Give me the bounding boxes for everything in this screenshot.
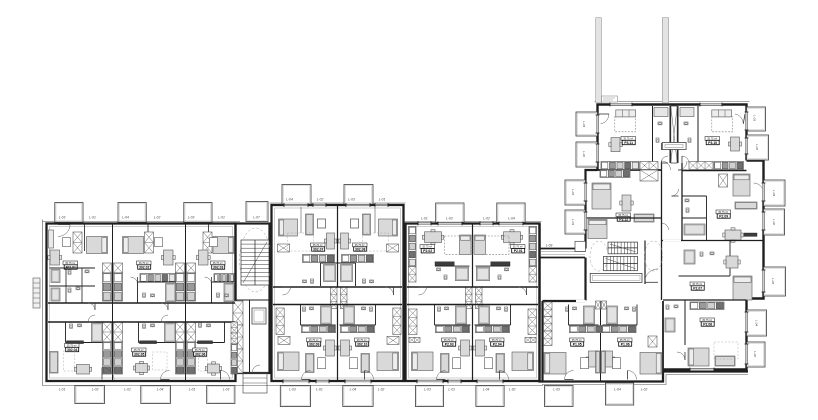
svg-text:L-03: L-03 <box>424 388 431 392</box>
svg-text:P3.11: P3.11 <box>624 141 633 145</box>
svg-text:L-03: L-03 <box>348 198 355 202</box>
svg-text:P1.05: P1.05 <box>573 342 582 346</box>
svg-text:L-01: L-01 <box>753 115 757 121</box>
svg-text:P2.06: P2.06 <box>703 322 712 326</box>
svg-text:L-01: L-01 <box>189 388 196 392</box>
svg-text:L-02: L-02 <box>753 351 757 357</box>
svg-text:L-02: L-02 <box>317 198 324 202</box>
svg-text:L-01: L-01 <box>316 388 323 392</box>
svg-text:L-03: L-03 <box>59 216 66 220</box>
svg-text:L-07: L-07 <box>253 216 260 220</box>
svg-text:L-01: L-01 <box>421 217 428 221</box>
svg-text:P3.10: P3.10 <box>708 141 717 145</box>
svg-text:L-03: L-03 <box>571 189 575 195</box>
svg-text:L-04: L-04 <box>755 320 759 326</box>
svg-text:L-03: L-03 <box>446 217 453 221</box>
svg-text:302.07: 302.07 <box>313 247 323 251</box>
svg-text:L-01: L-01 <box>379 198 386 202</box>
svg-text:P2.04: P2.04 <box>493 342 502 346</box>
svg-text:L-04: L-04 <box>350 388 357 392</box>
svg-text:L-04: L-04 <box>483 388 490 392</box>
svg-text:L-01: L-01 <box>59 388 66 392</box>
svg-text:L-04: L-04 <box>614 388 621 392</box>
svg-text:302.01: 302.01 <box>66 265 76 269</box>
svg-text:L-09: L-09 <box>546 244 553 248</box>
svg-text:P2.03: P2.03 <box>445 342 454 346</box>
svg-text:L-04: L-04 <box>772 190 776 196</box>
svg-text:L-01: L-01 <box>571 219 575 225</box>
svg-text:L-04: L-04 <box>122 216 129 220</box>
svg-text:L-03: L-03 <box>92 388 99 392</box>
svg-text:L-02: L-02 <box>483 217 490 221</box>
svg-text:P2.01: P2.01 <box>514 249 523 253</box>
svg-text:L-02: L-02 <box>154 216 161 220</box>
svg-text:L-02: L-02 <box>641 388 648 392</box>
svg-text:L-02: L-02 <box>582 151 586 157</box>
svg-text:L-01: L-01 <box>218 216 225 220</box>
svg-text:L-03: L-03 <box>755 144 759 150</box>
svg-text:L-03: L-03 <box>771 278 775 284</box>
svg-text:P1.06: P1.06 <box>621 342 630 346</box>
svg-text:L-01: L-01 <box>89 216 96 220</box>
svg-text:L-02: L-02 <box>772 219 776 225</box>
svg-text:P2.09: P2.09 <box>719 214 728 218</box>
svg-text:P2.07: P2.07 <box>693 286 702 290</box>
svg-text:L-04: L-04 <box>157 388 164 392</box>
svg-text:302.05: 302.05 <box>134 352 144 356</box>
svg-text:302.02: 302.02 <box>139 265 149 269</box>
svg-text:302.10: 302.10 <box>357 342 367 346</box>
svg-text:302.09: 302.09 <box>309 342 319 346</box>
svg-text:L-02: L-02 <box>124 388 131 392</box>
svg-text:L-04: L-04 <box>286 198 293 202</box>
svg-text:L-03: L-03 <box>223 388 230 392</box>
svg-text:L-01: L-01 <box>448 388 455 392</box>
svg-text:L-02: L-02 <box>509 388 516 392</box>
svg-text:302.06: 302.06 <box>195 352 205 356</box>
svg-text:L-02: L-02 <box>378 388 385 392</box>
svg-text:L-03: L-03 <box>188 216 195 220</box>
svg-text:P2.02: P2.02 <box>423 249 432 253</box>
svg-text:L-03: L-03 <box>553 388 560 392</box>
svg-text:302.08: 302.08 <box>355 247 365 251</box>
svg-text:L-04: L-04 <box>582 121 586 127</box>
svg-text:L-03: L-03 <box>289 388 296 392</box>
svg-text:L-04: L-04 <box>508 217 515 221</box>
svg-text:302.03: 302.03 <box>213 265 223 269</box>
